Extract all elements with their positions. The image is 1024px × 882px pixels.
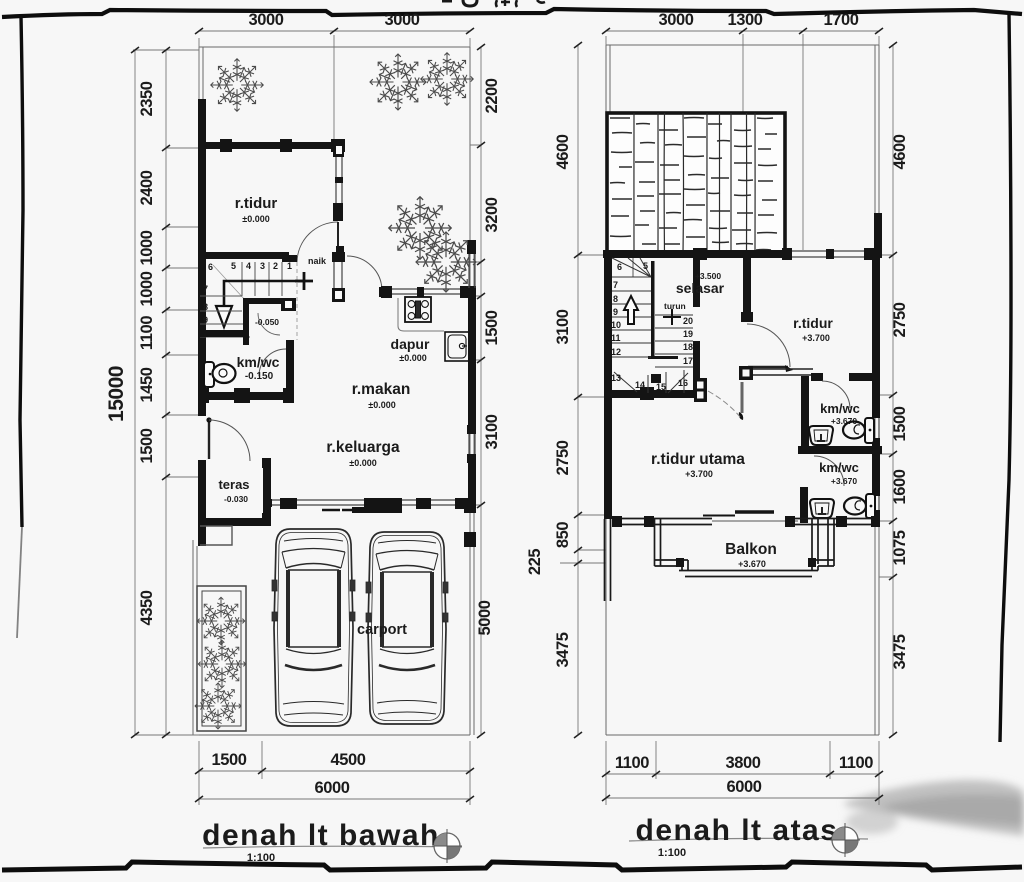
svg-text:5: 5	[643, 261, 648, 271]
svg-text:carport: carport	[357, 622, 407, 638]
svg-text:3000: 3000	[248, 11, 283, 29]
svg-text:1100: 1100	[839, 754, 873, 772]
svg-text:1: 1	[287, 261, 292, 271]
svg-text:4600: 4600	[554, 134, 572, 169]
svg-text:11: 11	[611, 333, 621, 343]
svg-text:850: 850	[554, 522, 572, 549]
svg-text:2750: 2750	[891, 302, 909, 337]
svg-text:17: 17	[683, 356, 693, 366]
svg-text:1300: 1300	[727, 11, 762, 29]
svg-text:3100: 3100	[483, 414, 501, 449]
svg-text:3: 3	[260, 261, 265, 271]
svg-text:8: 8	[203, 302, 208, 312]
svg-text:2400: 2400	[138, 170, 156, 205]
svg-text:Balkon: Balkon	[725, 541, 777, 558]
svg-text:3475: 3475	[891, 634, 909, 669]
svg-text:10: 10	[611, 320, 621, 330]
svg-text:±0.000: ±0.000	[368, 400, 395, 410]
svg-text:1000: 1000	[138, 271, 156, 306]
svg-text:20: 20	[683, 316, 693, 326]
svg-text:225: 225	[526, 549, 544, 576]
svg-text:denah lt atas: denah lt atas	[636, 814, 839, 847]
svg-text:7: 7	[613, 280, 618, 290]
svg-text:1:100: 1:100	[658, 847, 686, 859]
svg-text:1100: 1100	[138, 316, 156, 350]
svg-text:3100: 3100	[554, 309, 572, 344]
svg-text:9: 9	[203, 315, 208, 325]
svg-text:15000: 15000	[105, 366, 128, 422]
svg-text:4500: 4500	[330, 751, 365, 769]
svg-text:±0.000: ±0.000	[399, 353, 426, 363]
svg-text:r.tidur utama: r.tidur utama	[651, 451, 745, 468]
svg-text:r.tidur: r.tidur	[235, 195, 278, 212]
svg-text:-0.150: -0.150	[245, 371, 274, 382]
svg-text:15: 15	[656, 382, 666, 392]
svg-text:±0.000: ±0.000	[349, 458, 376, 468]
svg-text:4600: 4600	[891, 134, 909, 169]
svg-text:+3.700: +3.700	[685, 469, 713, 479]
svg-text:7: 7	[203, 284, 208, 294]
svg-text:4: 4	[246, 261, 251, 271]
svg-text:km/wc: km/wc	[819, 460, 859, 475]
svg-text:2: 2	[273, 261, 278, 271]
svg-text:+3.670: +3.670	[738, 559, 766, 569]
svg-text:±0.000: ±0.000	[242, 214, 269, 224]
svg-text:km/wc: km/wc	[820, 401, 860, 416]
svg-text:3000: 3000	[658, 11, 693, 29]
svg-text:3200: 3200	[483, 197, 501, 232]
svg-text:1075: 1075	[891, 530, 909, 565]
svg-text:denah lt bawah: denah lt bawah	[202, 819, 440, 852]
svg-text:2350: 2350	[138, 81, 156, 116]
svg-text:9: 9	[613, 307, 618, 317]
svg-text:+3.670: +3.670	[831, 476, 858, 486]
svg-text:3800: 3800	[725, 754, 760, 772]
svg-text:6: 6	[208, 262, 213, 272]
svg-text:8: 8	[613, 294, 618, 304]
svg-text:6: 6	[617, 262, 622, 272]
svg-text:3000: 3000	[384, 11, 419, 29]
svg-text:1500: 1500	[891, 406, 909, 441]
svg-text:18: 18	[683, 342, 693, 352]
svg-text:1450: 1450	[138, 367, 156, 402]
svg-text:1500: 1500	[483, 310, 501, 345]
svg-text:6000: 6000	[314, 779, 349, 797]
svg-text:5000: 5000	[476, 600, 494, 635]
svg-text:19: 19	[683, 329, 693, 339]
svg-text:5: 5	[231, 261, 236, 271]
svg-text:2750: 2750	[554, 440, 572, 475]
svg-text:6000: 6000	[726, 778, 761, 796]
svg-text:+3.700: +3.700	[802, 333, 830, 343]
svg-text:16: 16	[678, 378, 688, 388]
svg-text:1100: 1100	[615, 754, 649, 772]
svg-text:2200: 2200	[483, 78, 501, 113]
svg-text:1:100: 1:100	[247, 852, 275, 864]
svg-text:13: 13	[611, 373, 621, 383]
svg-text:1000: 1000	[138, 230, 156, 265]
svg-text:r.tidur: r.tidur	[793, 315, 833, 331]
svg-text:1700: 1700	[823, 11, 858, 29]
svg-text:-0.030: -0.030	[224, 494, 248, 504]
svg-text:14: 14	[635, 380, 645, 390]
svg-text:turun: turun	[664, 301, 686, 311]
svg-text:1500: 1500	[211, 751, 246, 769]
svg-text:dapur: dapur	[391, 336, 430, 352]
svg-text:r.keluarga: r.keluarga	[326, 439, 400, 456]
svg-text:teras: teras	[218, 477, 249, 492]
svg-text:km/wc: km/wc	[237, 354, 280, 370]
svg-text:1600: 1600	[891, 469, 909, 504]
svg-text:12: 12	[611, 347, 621, 357]
svg-text:1500: 1500	[138, 428, 156, 463]
svg-text:4350: 4350	[138, 590, 156, 625]
svg-text:3475: 3475	[554, 632, 572, 667]
svg-text:naik: naik	[308, 256, 327, 266]
svg-text:selasar: selasar	[676, 280, 725, 296]
svg-text:r.makan: r.makan	[352, 381, 411, 398]
